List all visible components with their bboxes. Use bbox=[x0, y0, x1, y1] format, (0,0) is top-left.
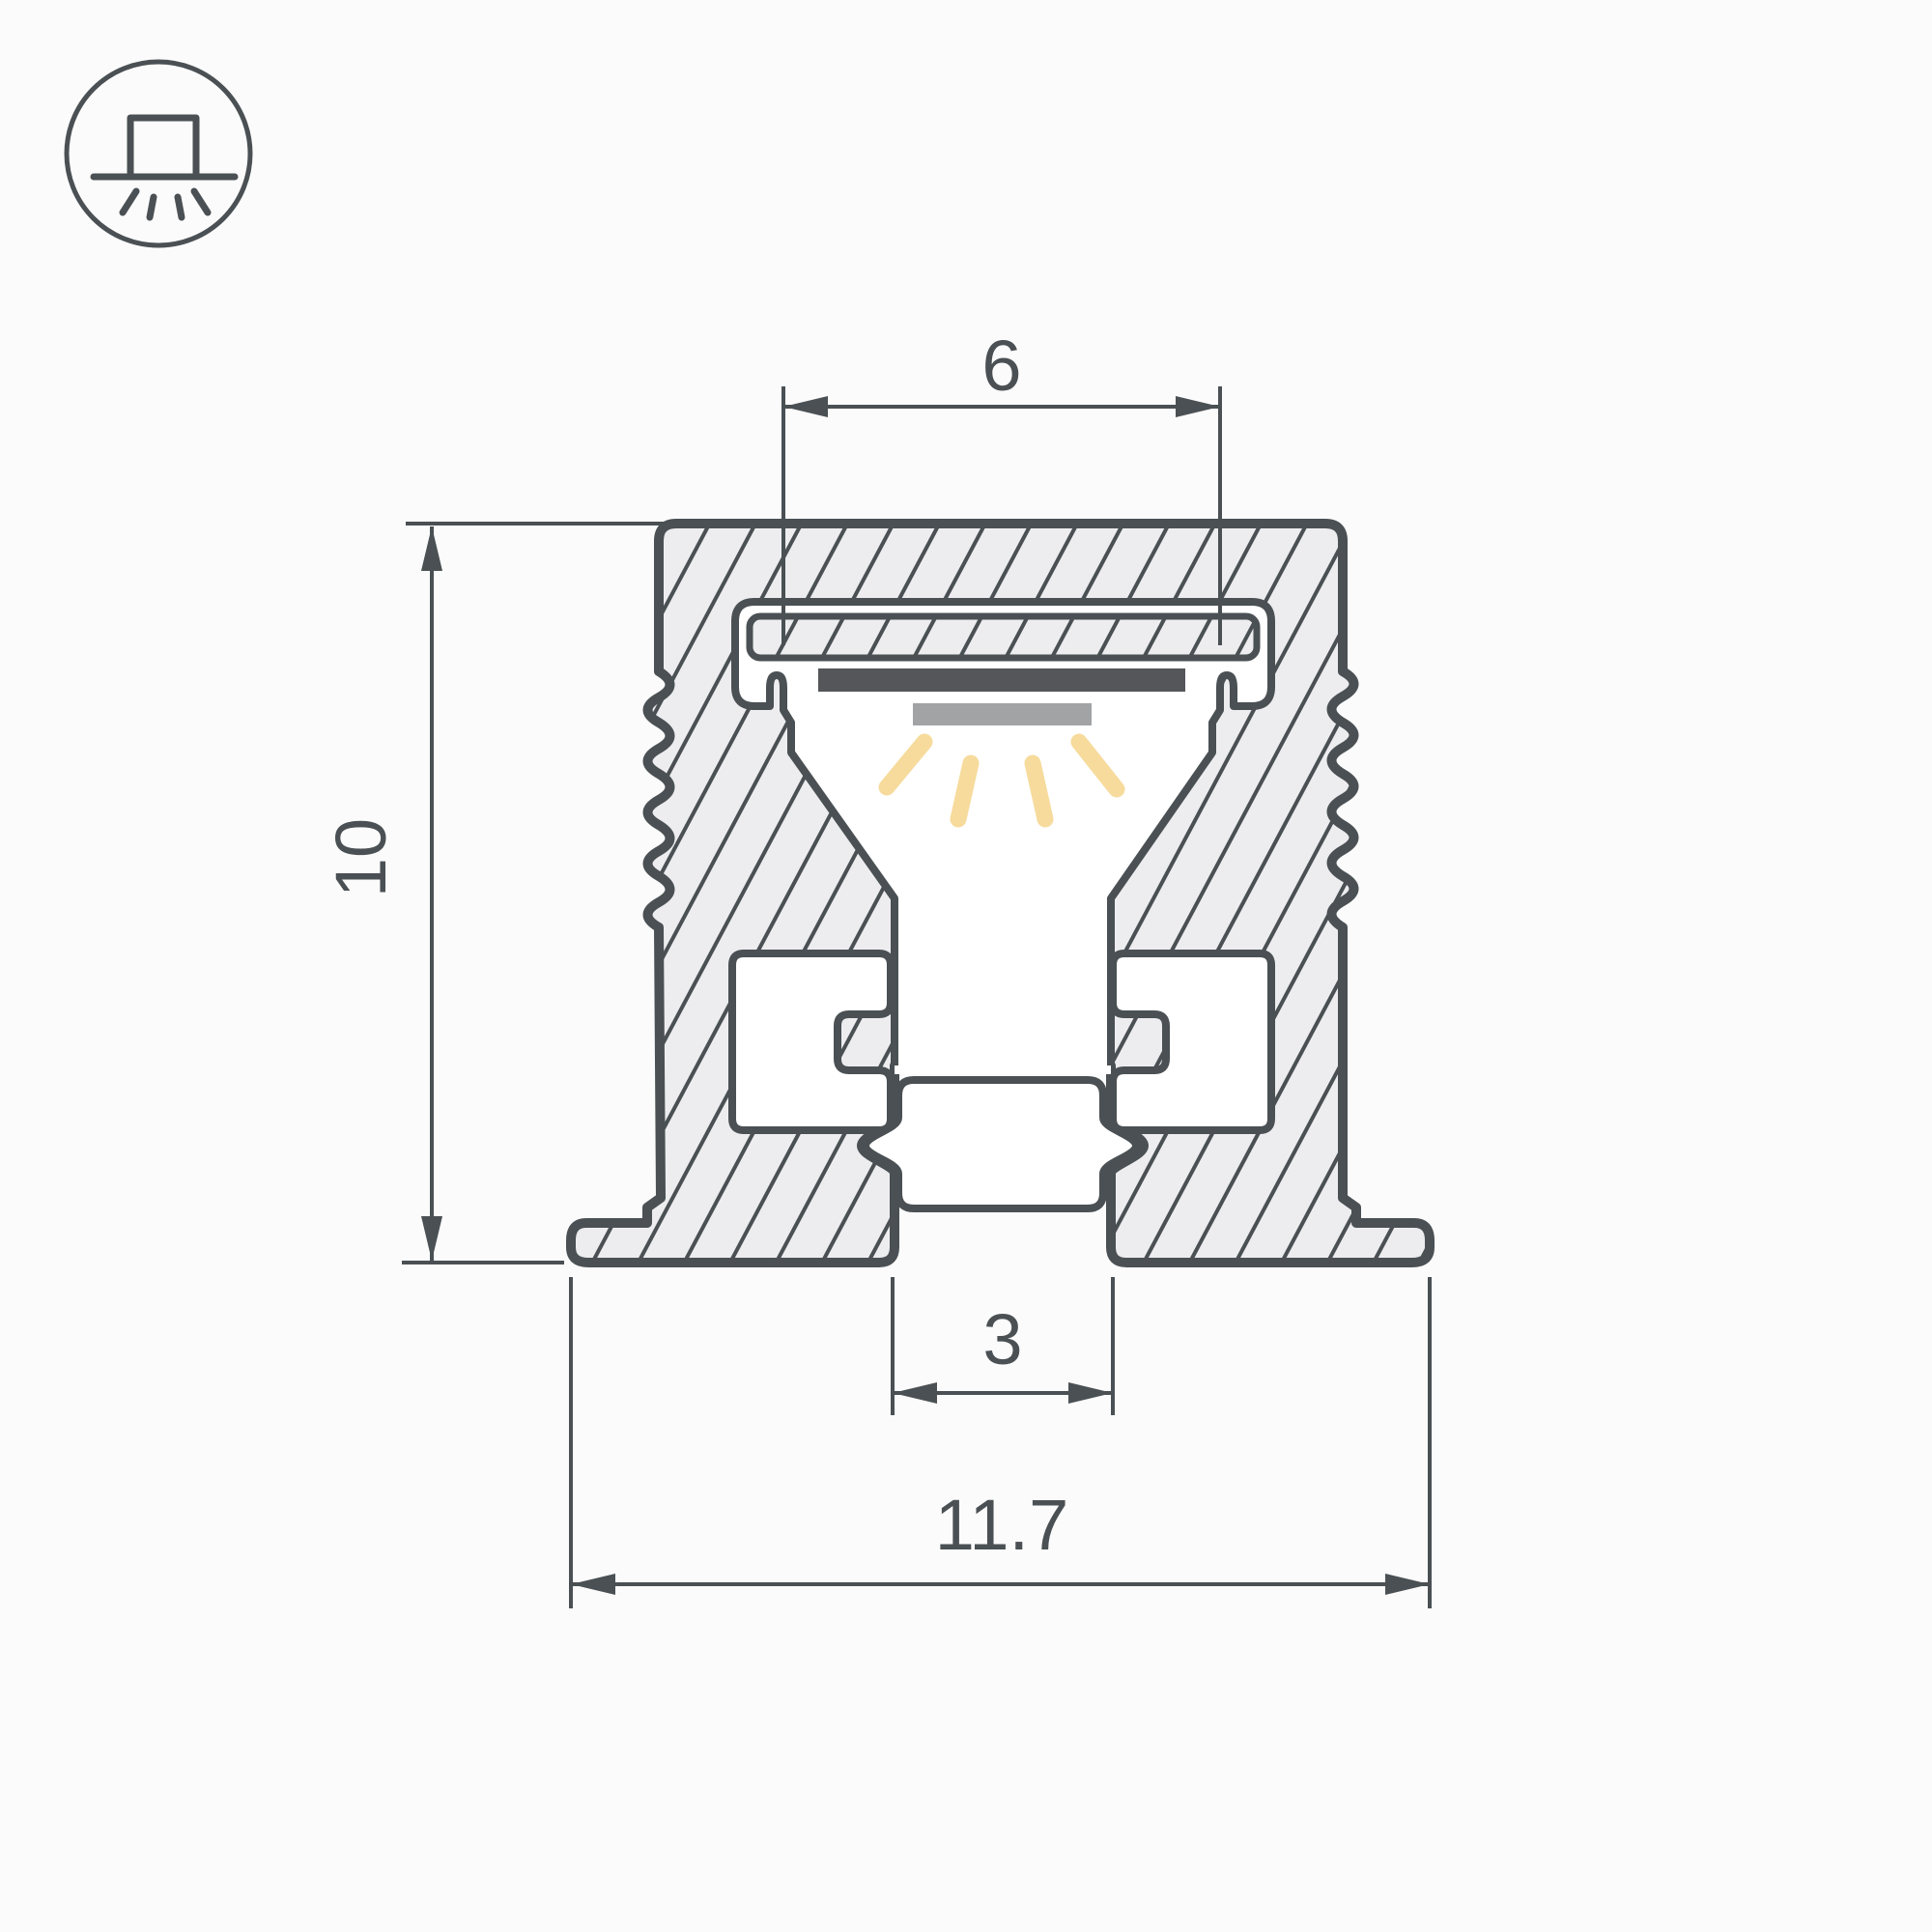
dimension-height: 10 bbox=[321, 524, 673, 1263]
icon-circle bbox=[67, 62, 250, 245]
diffuser-plate-hatching bbox=[750, 616, 1257, 658]
dimension-groove-width-label: 3 bbox=[982, 1299, 1022, 1379]
profile-cross-section-drawing: 6 10 3 11.7 bbox=[0, 0, 1932, 1932]
dimension-groove-width: 3 bbox=[893, 1277, 1113, 1415]
icon-profile-box bbox=[130, 118, 196, 177]
arrow-left-icon bbox=[783, 396, 828, 417]
diffuser-plate bbox=[750, 616, 1257, 658]
arrow-left-icon bbox=[571, 1574, 615, 1595]
icon-light-rays bbox=[123, 191, 208, 217]
arrow-right-icon bbox=[1385, 1574, 1430, 1595]
arrow-down-icon bbox=[421, 1216, 442, 1261]
surface-mount-downlight-icon bbox=[67, 62, 250, 245]
arrow-left-icon bbox=[893, 1382, 937, 1404]
dimension-overall-width-label: 11.7 bbox=[935, 1485, 1069, 1565]
arrow-right-icon bbox=[1176, 396, 1220, 417]
arrow-up-icon bbox=[421, 526, 442, 571]
drawing-page: 6 10 3 11.7 bbox=[0, 0, 1932, 1932]
bottom-groove-gasket bbox=[866, 1080, 1136, 1208]
arrow-right-icon bbox=[1068, 1382, 1113, 1404]
led-emitter-bar bbox=[913, 703, 1092, 725]
dimension-slot-width-label: 6 bbox=[981, 326, 1021, 406]
dimension-height-lines bbox=[402, 524, 673, 1263]
led-pcb-bar bbox=[818, 668, 1185, 692]
dimension-height-label: 10 bbox=[321, 818, 401, 897]
